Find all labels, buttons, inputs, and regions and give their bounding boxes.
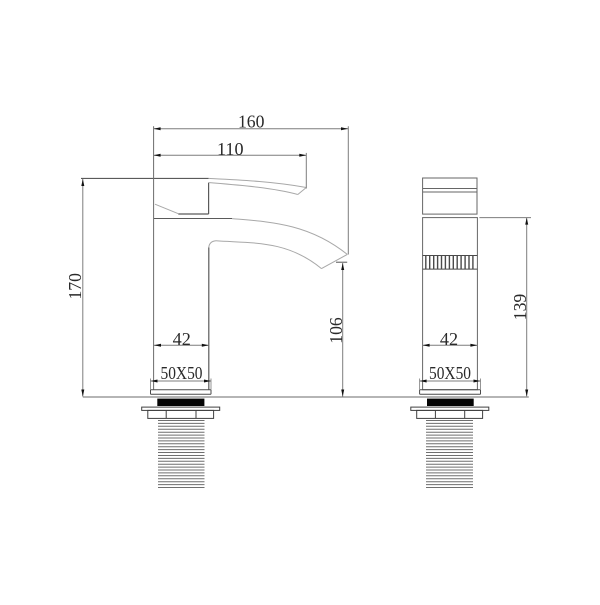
svg-text:42: 42 (440, 329, 458, 349)
svg-text:160: 160 (238, 112, 265, 132)
svg-text:106: 106 (326, 317, 346, 344)
svg-text:50X50: 50X50 (429, 363, 471, 383)
svg-text:110: 110 (217, 139, 244, 159)
svg-text:50X50: 50X50 (161, 363, 203, 383)
svg-text:170: 170 (65, 273, 85, 300)
svg-text:42: 42 (173, 329, 191, 349)
svg-text:139: 139 (510, 294, 530, 321)
